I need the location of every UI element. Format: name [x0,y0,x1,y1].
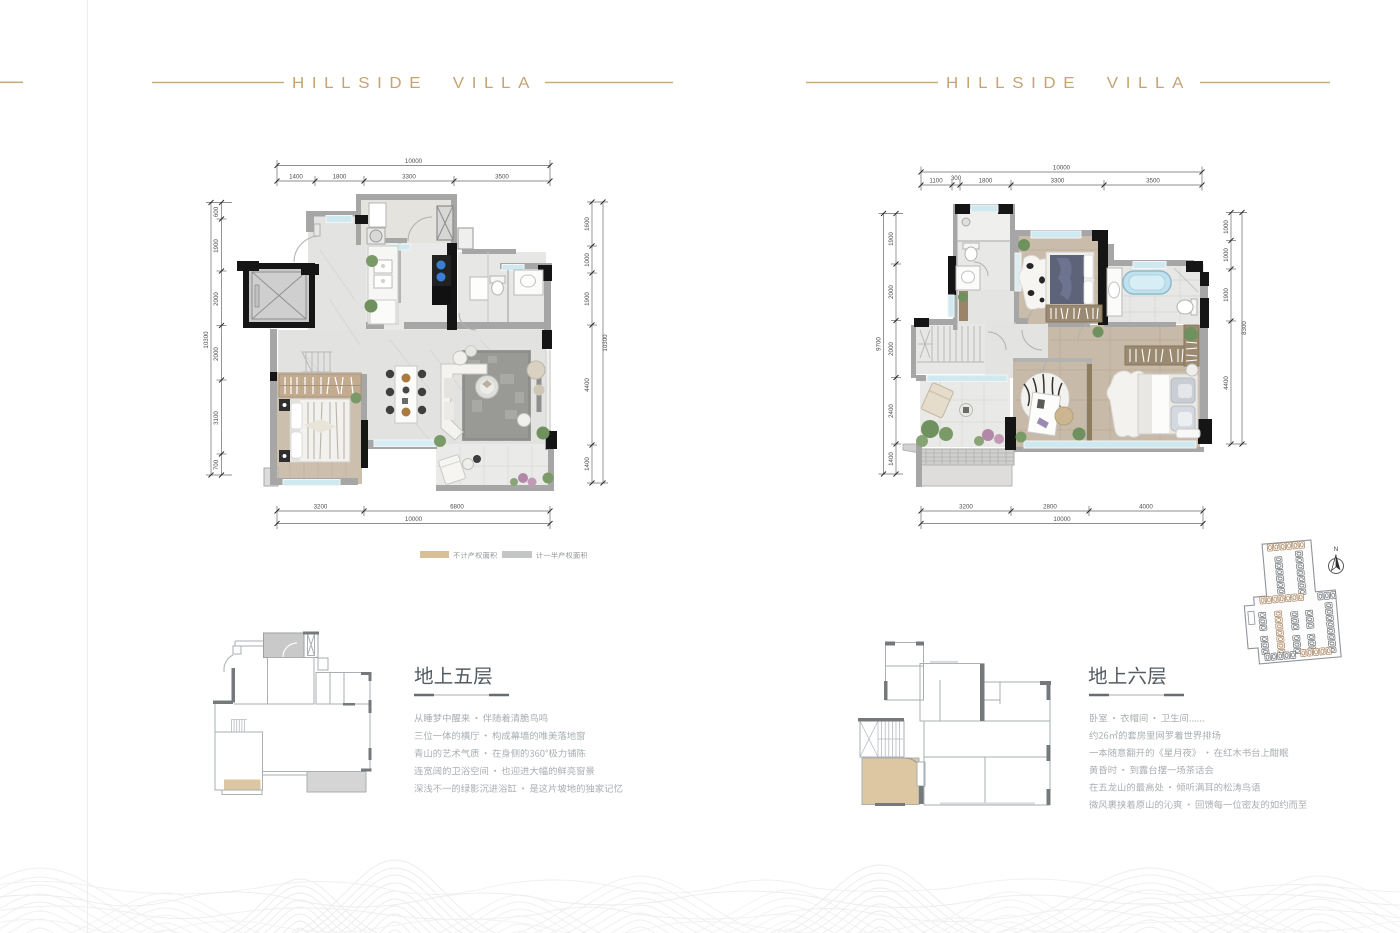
svg-text:700: 700 [213,459,220,470]
svg-text:9700: 9700 [876,337,883,351]
svg-text:10000: 10000 [1053,165,1071,172]
svg-text:2400: 2400 [888,404,895,418]
svg-text:1900: 1900 [584,292,591,306]
svg-text:2000: 2000 [888,342,895,356]
svg-text:2000: 2000 [888,285,895,299]
svg-text:2800: 2800 [1043,504,1057,511]
svg-text:1900: 1900 [1223,288,1230,302]
svg-text:4000: 4000 [1139,504,1153,511]
svg-text:10300: 10300 [203,331,210,349]
svg-text:6800: 6800 [450,504,464,511]
svg-text:1800: 1800 [979,178,993,185]
svg-text:3100: 3100 [213,411,220,425]
svg-text:4400: 4400 [1223,376,1230,390]
svg-text:8300: 8300 [1241,321,1248,335]
svg-text:3500: 3500 [495,174,509,181]
svg-text:10300: 10300 [602,334,609,352]
svg-text:1900: 1900 [213,239,220,253]
svg-text:3200: 3200 [314,504,328,511]
svg-text:1100: 1100 [929,178,943,185]
svg-text:1400: 1400 [584,457,591,471]
svg-text:10000: 10000 [405,516,423,523]
svg-text:1900: 1900 [888,232,895,246]
svg-text:3500: 3500 [1146,178,1160,185]
svg-text:3200: 3200 [959,504,973,511]
svg-text:HILLSIDE VILLA: HILLSIDE VILLA [292,75,537,92]
svg-text:1000: 1000 [1223,220,1230,234]
svg-text:10000: 10000 [1053,516,1071,523]
svg-text:1000: 1000 [584,253,591,267]
svg-text:2000: 2000 [213,292,220,306]
svg-text:2000: 2000 [213,347,220,361]
svg-text:4400: 4400 [584,378,591,392]
svg-text:10000: 10000 [405,158,423,165]
svg-text:1000: 1000 [1223,248,1230,262]
svg-text:3300: 3300 [402,174,416,181]
svg-text:1800: 1800 [333,174,347,181]
svg-text:1400: 1400 [888,452,895,466]
svg-text:1400: 1400 [289,174,303,181]
svg-text:HILLSIDE VILLA: HILLSIDE VILLA [946,75,1191,92]
svg-text:300: 300 [951,175,962,182]
svg-text:600: 600 [213,206,220,217]
svg-text:N: N [1334,546,1339,553]
svg-text:3300: 3300 [1051,178,1065,185]
svg-text:1600: 1600 [584,217,591,231]
